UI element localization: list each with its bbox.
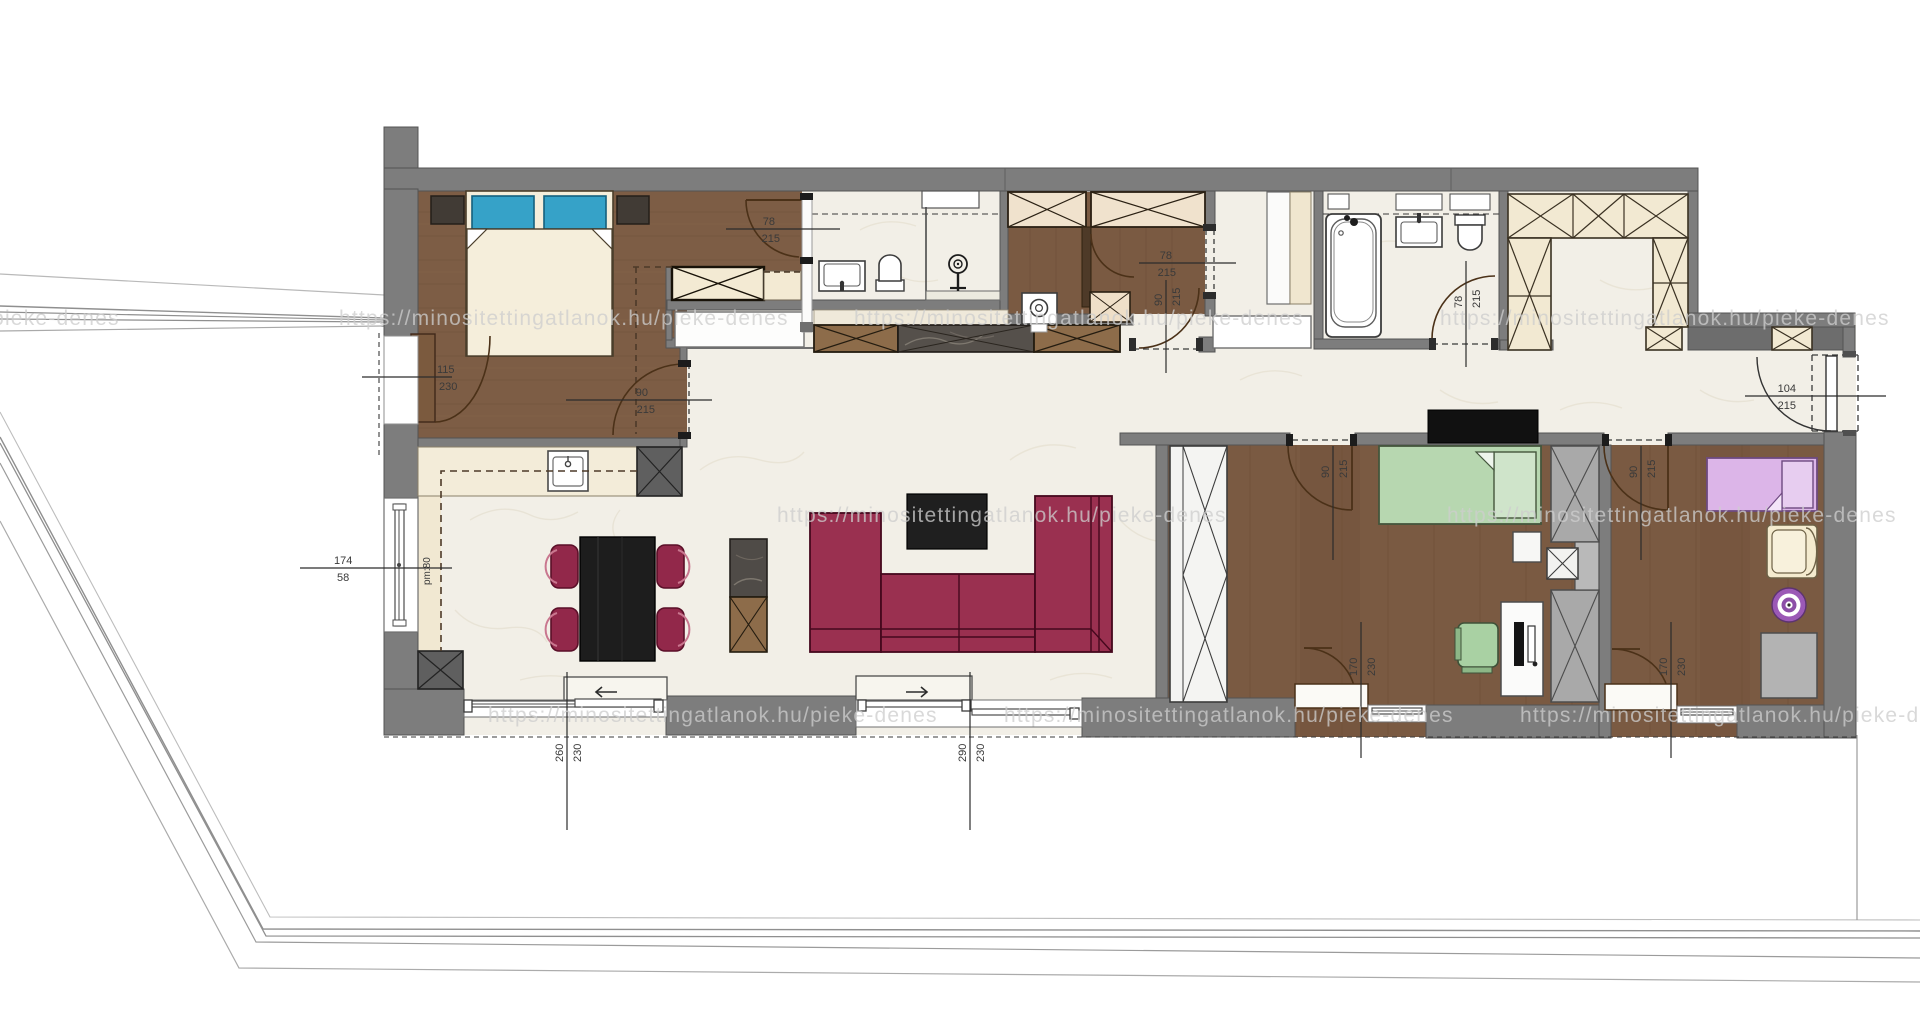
svg-text:230: 230 bbox=[1676, 658, 1688, 676]
svg-text:90: 90 bbox=[1153, 294, 1165, 306]
svg-text:174: 174 bbox=[334, 555, 352, 567]
svg-text:https://minositettingatlanok.h: https://minositettingatlanok.hu/pieke-de… bbox=[777, 504, 1227, 527]
svg-text:https://minositettingatlanok.h: https://minositettingatlanok.hu/pieke-de… bbox=[0, 307, 120, 330]
svg-text:78: 78 bbox=[763, 216, 775, 228]
svg-text:https://minositettingatlanok.h: https://minositettingatlanok.hu/pieke-de… bbox=[1520, 704, 1920, 727]
svg-text:115: 115 bbox=[437, 364, 455, 376]
svg-text:58: 58 bbox=[337, 572, 349, 584]
svg-text:215: 215 bbox=[762, 233, 780, 245]
svg-text:90: 90 bbox=[636, 387, 648, 399]
svg-text:170: 170 bbox=[1658, 658, 1670, 676]
svg-text:215: 215 bbox=[1471, 290, 1483, 308]
svg-text:260: 260 bbox=[554, 744, 566, 762]
svg-text:https://minositettingatlanok.h: https://minositettingatlanok.hu/pieke-de… bbox=[1004, 704, 1454, 727]
svg-text:230: 230 bbox=[975, 744, 987, 762]
svg-text:215: 215 bbox=[1646, 460, 1658, 478]
svg-text:215: 215 bbox=[637, 404, 655, 416]
svg-text:pm:80: pm:80 bbox=[422, 557, 433, 585]
svg-text:https://minositettingatlanok.h: https://minositettingatlanok.hu/pieke-de… bbox=[1440, 307, 1890, 330]
svg-text:215: 215 bbox=[1171, 288, 1183, 306]
svg-text:90: 90 bbox=[1628, 466, 1640, 478]
svg-text:170: 170 bbox=[1348, 658, 1360, 676]
svg-text:215: 215 bbox=[1338, 460, 1350, 478]
svg-text:230: 230 bbox=[439, 381, 457, 393]
svg-text:215: 215 bbox=[1778, 400, 1796, 412]
svg-text:https://minositettingatlanok.h: https://minositettingatlanok.hu/pieke-de… bbox=[488, 704, 938, 727]
svg-text:215: 215 bbox=[1158, 267, 1176, 279]
svg-text:230: 230 bbox=[572, 744, 584, 762]
svg-text:230: 230 bbox=[1366, 658, 1378, 676]
svg-text:290: 290 bbox=[957, 744, 969, 762]
svg-text:104: 104 bbox=[1778, 383, 1796, 395]
svg-text:https://minositettingatlanok.h: https://minositettingatlanok.hu/pieke-de… bbox=[1447, 504, 1897, 527]
svg-text:90: 90 bbox=[1320, 466, 1332, 478]
svg-text:https://minositettingatlanok.h: https://minositettingatlanok.hu/pieke-de… bbox=[339, 307, 789, 330]
svg-text:78: 78 bbox=[1160, 250, 1172, 262]
svg-text:https://minositettingatlanok.h: https://minositettingatlanok.hu/pieke-de… bbox=[854, 307, 1304, 330]
